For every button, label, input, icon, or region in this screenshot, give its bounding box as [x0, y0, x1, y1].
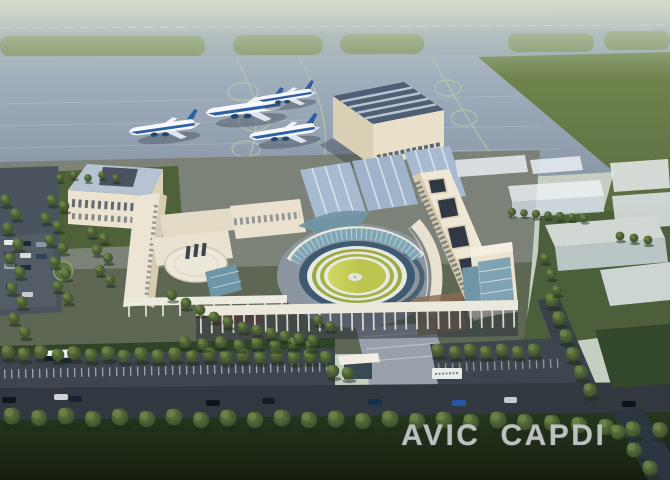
rendering-canvas: [0, 0, 670, 480]
watermark-text: AVIC CAPDI: [401, 419, 606, 453]
south-colonnade: [196, 300, 518, 342]
architectural-rendering: AVIC CAPDI: [0, 0, 670, 480]
fog-overlay: [0, 0, 670, 78]
watermark-word: AVIC: [401, 419, 480, 453]
east-lawn: [595, 324, 670, 388]
watermark-word: CAPDI: [500, 419, 606, 453]
north-center-building: [230, 199, 306, 239]
